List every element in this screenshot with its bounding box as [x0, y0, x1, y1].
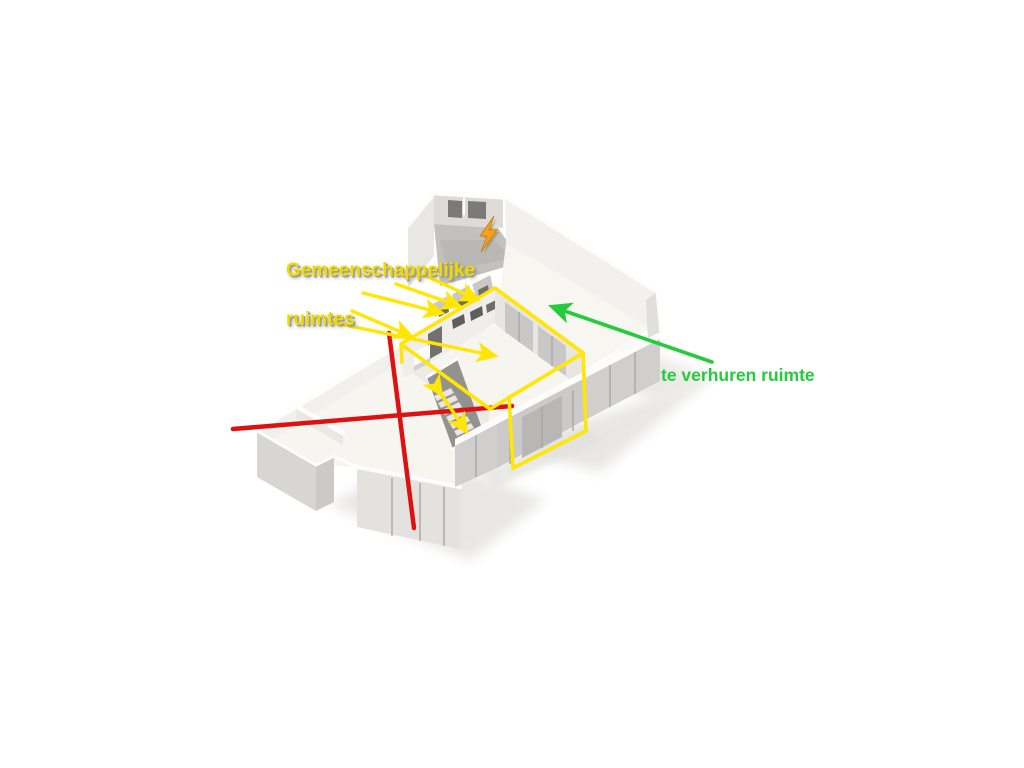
common-areas-label-line2: ruimtes	[286, 309, 355, 330]
rental-space-label-text: te verhuren ruimte	[661, 365, 815, 385]
common-areas-label-line1: Gemeenschappelijke	[286, 260, 475, 281]
rental-space-label: te verhuren ruimte	[661, 364, 815, 386]
common-areas-label: Gemeenschappelijke ruimtes	[286, 259, 475, 332]
floorplan-3d-drawing	[0, 0, 1024, 768]
floorplan-render: Gemeenschappelijke ruimtes te verhuren r…	[0, 0, 1024, 768]
